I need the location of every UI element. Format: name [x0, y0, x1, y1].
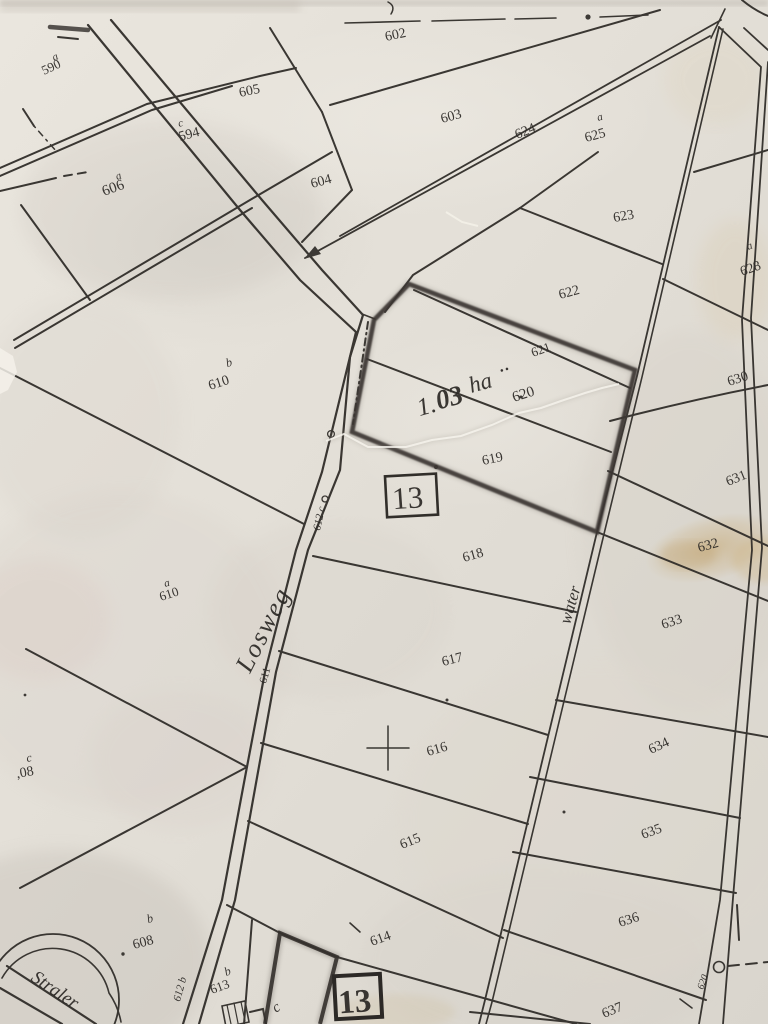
- svg-text:13: 13: [391, 479, 424, 516]
- svg-text:,08: ,08: [15, 764, 35, 782]
- svg-text:13: 13: [337, 983, 372, 1021]
